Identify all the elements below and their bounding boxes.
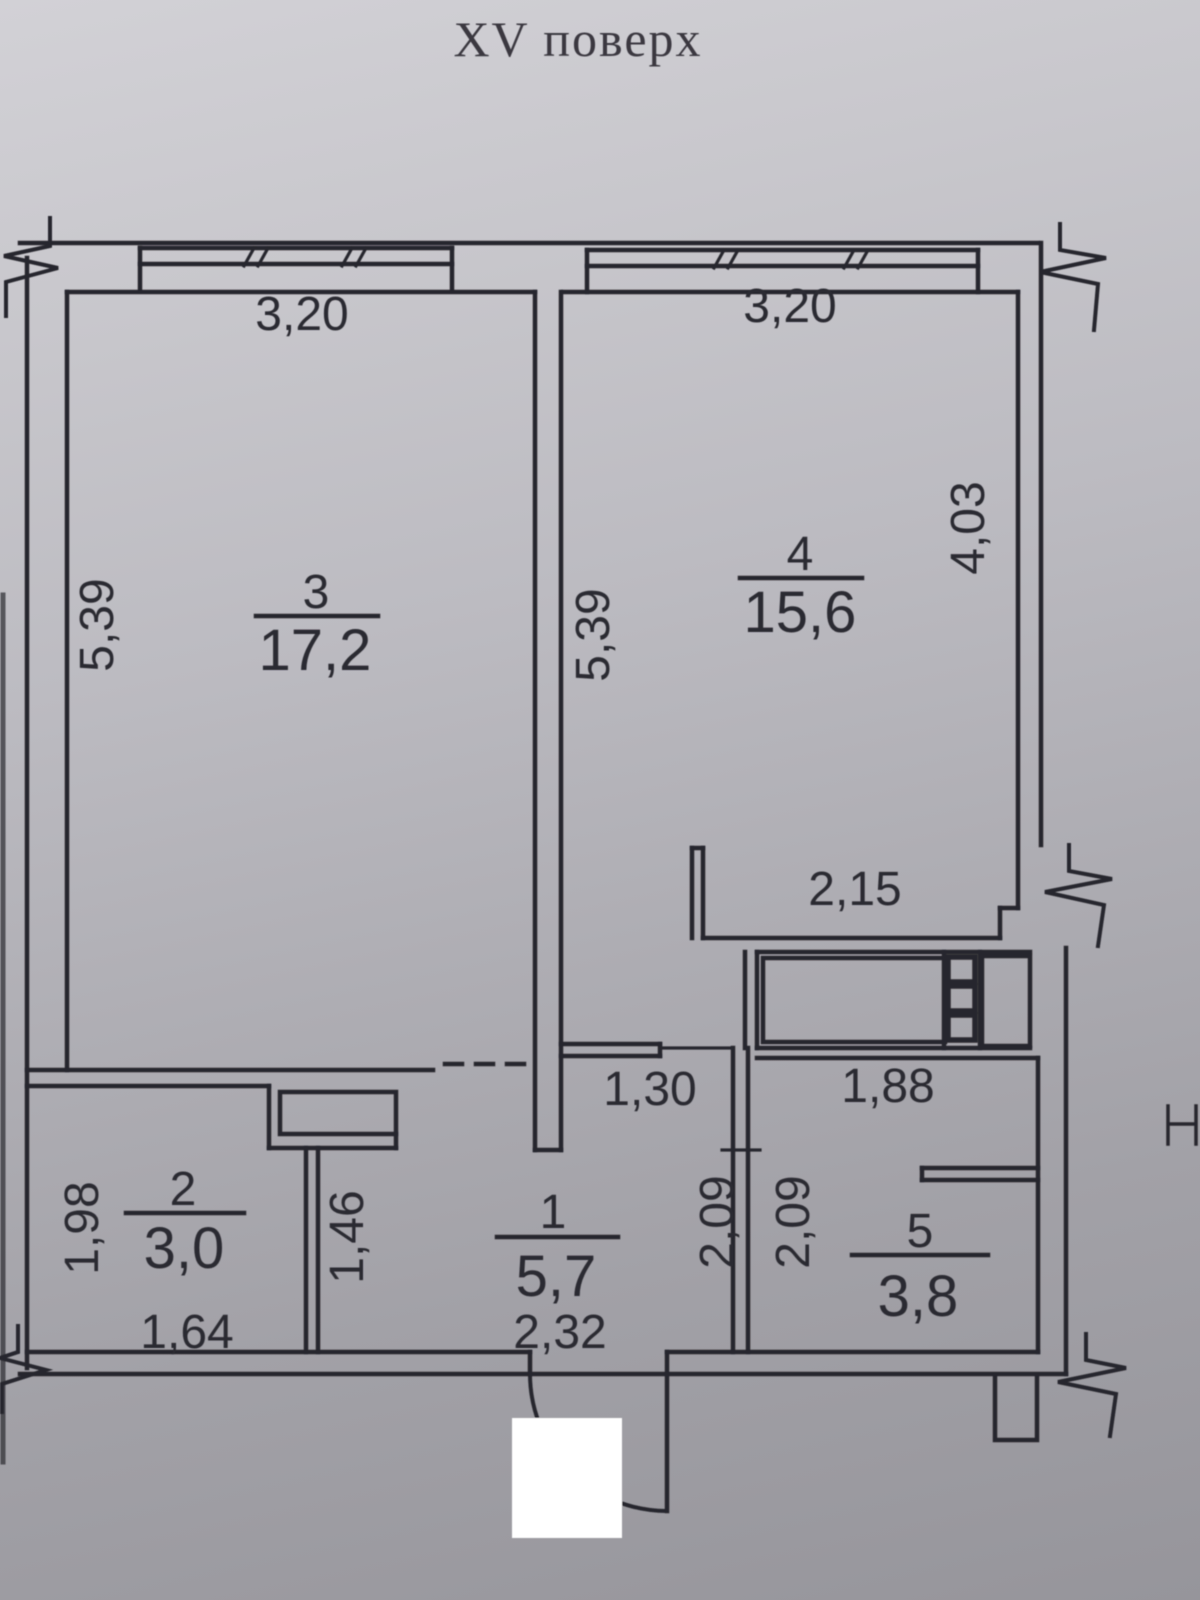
hall-top-wall [561,1044,733,1056]
room-1-number-label: 1 [540,1186,567,1239]
builtin-strip [745,952,1030,1048]
dim-room4-width-top: 3,20 [743,280,836,333]
vent-cell [948,986,975,1011]
plan-labels: XV поверх 3,20 3,20 2,15 1,30 1,88 1,64 … [56,11,995,1359]
exterior-pier [995,1378,1037,1440]
dim-niche-width: 2,15 [808,863,901,916]
dim-room2-depth: 1,98 [56,1181,109,1274]
break-mark-middle-right [1045,845,1112,946]
neighbor-wall-mark [1168,1106,1196,1144]
vent-cell [948,957,975,982]
room-4-area-label: 15,6 [744,580,857,645]
dim-hall-width: 2,32 [513,1306,606,1359]
wardrobe-box [763,958,945,1042]
floor-plan-photo: XV поверх 3,20 3,20 2,15 1,30 1,88 1,64 … [0,0,1200,1600]
strip-left-wall [745,952,757,1048]
dim-room3-depth-left: 5,39 [71,578,124,671]
room-2-number-label: 2 [170,1163,197,1216]
page-title: XV поверх [453,11,702,67]
room5-duct-shelf [922,1168,1038,1180]
dim-hall-opening-width: 1,30 [603,1063,696,1116]
dim-room3-width-top: 3,20 [255,288,348,341]
room2-top-wall [27,1070,433,1148]
partition-room2-room1 [306,1148,318,1352]
dim-room4-depth-right: 4,03 [942,481,995,574]
room-3-area-label: 17,2 [259,618,372,683]
dim-room4-depth-middle: 5,39 [567,588,620,681]
room-3-number-label: 3 [303,566,330,619]
dim-room2-width: 1,64 [140,1306,233,1359]
room-4-number-label: 4 [787,528,814,581]
break-mark-top-right [1040,224,1106,330]
break-mark-bottom-left [0,1326,46,1412]
room-1-area-label: 5,7 [516,1244,597,1309]
dim-hall-depth: 2,09 [691,1175,744,1268]
whiteout-patch [512,1418,622,1538]
vent-cell [948,1015,975,1040]
room-5-area-label: 3,8 [878,1264,959,1329]
room-5-number-label: 5 [907,1205,934,1258]
dim-room5-width: 1,88 [841,1060,934,1113]
dim-room5-depth: 2,09 [767,1175,820,1268]
break-mark-top-left [4,218,58,316]
duct-box [982,956,1030,1046]
dim-partition-length: 1,46 [321,1190,374,1283]
room-2-area-label: 3,0 [144,1216,225,1281]
room2-door-leaf [280,1092,396,1134]
window-room3 [140,248,452,290]
